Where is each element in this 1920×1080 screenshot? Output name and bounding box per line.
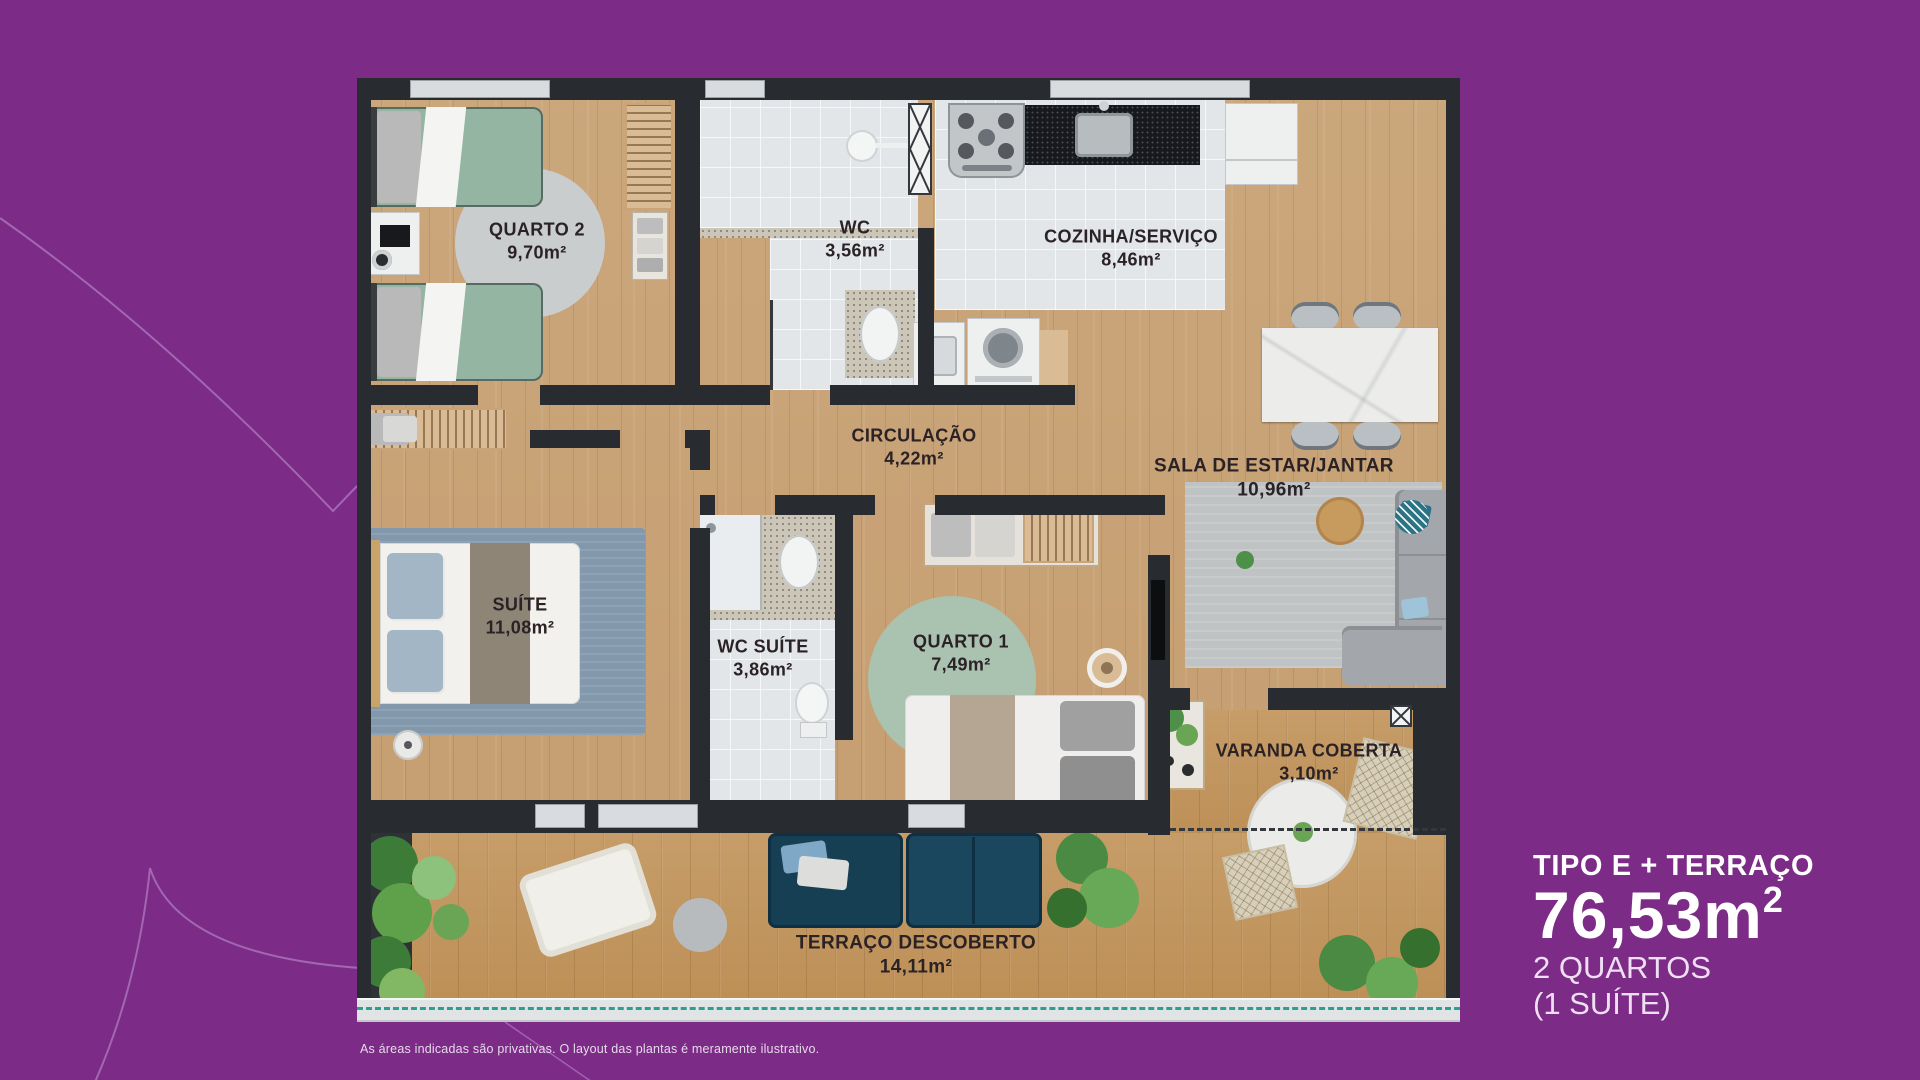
room-name: WC (840, 217, 871, 240)
kitchen-stove (948, 103, 1025, 178)
disclaimer-text: As áreas indicadas são privativas. O lay… (360, 1042, 819, 1056)
room-label-varanda: VARANDA COBERTA 3,10m² (1216, 740, 1403, 785)
shaft-box (908, 103, 932, 195)
room-label-quarto2: QUARTO 2 9,70m² (489, 219, 585, 264)
glass-door-living (598, 804, 698, 828)
wall-bottom-main (357, 800, 1169, 833)
room-name: QUARTO 2 (489, 219, 585, 242)
unit-suite-note: (1 SUÍTE) (1533, 986, 1814, 1022)
dining-chair (1353, 302, 1401, 330)
unit-info: TIPO E + TERRAÇO 76,53m2 2 QUARTOS (1 SU… (1533, 850, 1814, 1022)
quarto2-wardrobe-hangers (625, 103, 673, 210)
varanda-shaft-box (1390, 705, 1412, 727)
page: { "plan": { "rooms": { "quarto2": {"name… (0, 0, 1920, 1080)
room-area: 9,70m² (507, 241, 566, 264)
unit-area-sup: 2 (1763, 879, 1784, 920)
room-area: 4,22m² (884, 447, 943, 470)
window-wc (705, 80, 765, 98)
sala-plant (1236, 551, 1254, 569)
room-label-quarto1: QUARTO 1 7,49m² (913, 631, 1009, 676)
kitchen-side-counter (1040, 330, 1068, 390)
room-label-sala: SALA DE ESTAR/JANTAR 10,96m² (1154, 454, 1394, 502)
room-label-circulacao: CIRCULAÇÃO 4,22m² (852, 425, 977, 470)
unit-area: 76,53m2 (1533, 881, 1814, 950)
room-label-wc-suite: WC SUÍTE 3,86m² (717, 636, 808, 681)
terrace-round-rug (673, 898, 727, 952)
terrace-edge-band (357, 998, 1460, 1022)
room-name: CIRCULAÇÃO (852, 425, 977, 448)
floor-plan: QUARTO 2 9,70m² WC 3,56m² COZINHA/SERVIÇ… (357, 78, 1460, 1022)
kitchen-fridge (1225, 103, 1298, 185)
tv-panel (1151, 580, 1165, 660)
quarto2-bed-2 (367, 283, 543, 381)
sala-sofa-chaise (1342, 626, 1442, 685)
room-name: QUARTO 1 (913, 631, 1009, 654)
window-quarto2 (410, 80, 550, 98)
room-label-suite: SUÍTE 11,08m² (486, 594, 555, 639)
room-area: 3,56m² (825, 239, 884, 262)
room-name: VARANDA COBERTA (1216, 740, 1403, 763)
dining-chair (1291, 422, 1339, 450)
wc-suite-toilet (797, 684, 827, 722)
wc-door-leaf (770, 300, 773, 390)
room-area: 10,96m² (1237, 478, 1311, 502)
coffee-table (1316, 497, 1364, 545)
quarto1-bed (905, 695, 1145, 812)
varanda-dashed-line (1170, 828, 1446, 831)
room-area: 3,86m² (733, 658, 792, 681)
room-area: 8,46m² (1101, 248, 1160, 271)
room-area: 3,10m² (1279, 762, 1338, 785)
room-label-cozinha: COZINHA/SERVIÇO 8,46m² (1044, 226, 1218, 271)
wc-suite-toilet-tank (800, 722, 827, 738)
varanda-chair-left (1222, 844, 1298, 921)
teal-dashed-line (357, 1007, 1460, 1010)
kitchen-counter (1025, 105, 1200, 165)
room-area: 7,49m² (931, 653, 990, 676)
glass-door-suite (535, 804, 585, 828)
quarto2-wardrobe-shelves (632, 212, 668, 280)
wc-suite-vanity (762, 515, 835, 610)
wc-mosaic-strip (700, 228, 918, 238)
suite-side-table (393, 730, 423, 760)
quarto1-side-table (1087, 648, 1127, 688)
wall-left (357, 78, 371, 1000)
room-label-terraco: TERRAÇO DESCOBERTO 14,11m² (796, 931, 1036, 979)
room-name: COZINHA/SERVIÇO (1044, 226, 1218, 249)
quarto2-bed-1 (367, 107, 543, 207)
pouf (1395, 500, 1429, 534)
unit-bedrooms: 2 QUARTOS (1533, 950, 1814, 986)
dining-island (1262, 328, 1438, 422)
wall-right (1446, 78, 1460, 1000)
room-area: 14,11m² (880, 955, 953, 979)
window-kitchen (1050, 80, 1250, 98)
wc-suite-mosaic (700, 610, 835, 620)
wc-toilet (848, 132, 876, 160)
room-label-wc: WC 3,56m² (825, 217, 884, 262)
room-name: WC SUÍTE (717, 636, 808, 659)
dining-chair (1291, 302, 1339, 330)
wc-floor (700, 95, 918, 228)
room-name: SUÍTE (492, 594, 547, 617)
quarto2-tv-console (368, 212, 420, 275)
washing-machine (967, 318, 1040, 390)
hall-dresser (367, 408, 508, 450)
terrace-sofa-right (906, 833, 1042, 928)
terrace-sofa-left (768, 833, 903, 928)
wc-vanity (845, 290, 915, 378)
dining-chair (1353, 422, 1401, 450)
glass-door-quarto1 (908, 804, 965, 828)
room-name: SALA DE ESTAR/JANTAR (1154, 454, 1394, 478)
room-name: TERRAÇO DESCOBERTO (796, 931, 1036, 955)
sala-pillow-light (1401, 596, 1430, 619)
room-area: 11,08m² (486, 616, 555, 639)
